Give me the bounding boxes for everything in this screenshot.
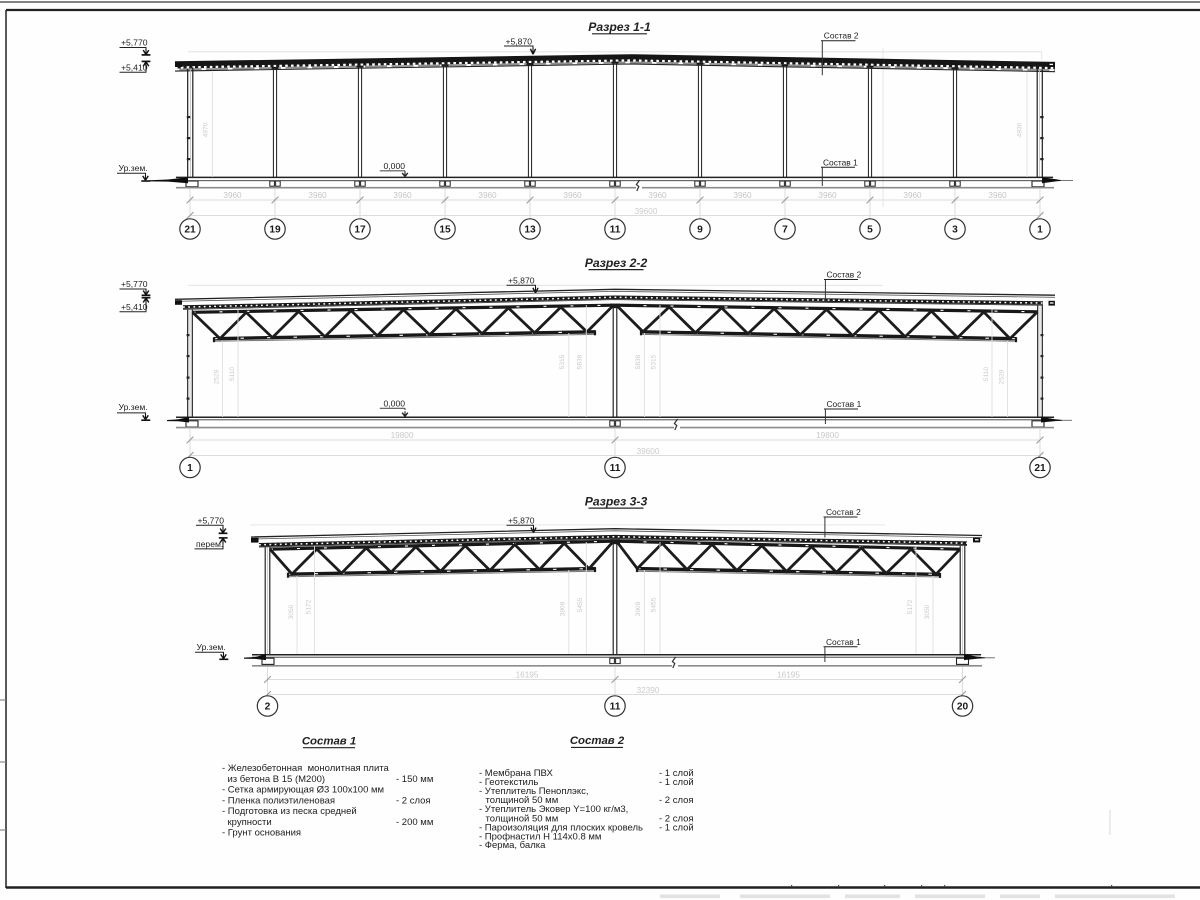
svg-text:- 2 слоя: - 2 слоя [659,795,694,806]
svg-text:3960: 3960 [648,191,667,200]
svg-text:1: 1 [187,463,193,474]
svg-text:+5,770: +5,770 [198,515,225,525]
svg-text:2: 2 [265,702,271,713]
svg-text:3960: 3960 [223,191,242,200]
svg-text:- Железобетонная монолитная п: - Железобетонная монолитная плита [222,763,389,774]
svg-text:+5,770: +5,770 [121,38,148,48]
svg-text:5110: 5110 [983,367,990,382]
svg-text:2529: 2529 [214,369,221,384]
svg-text:Разрез 1-1: Разрез 1-1 [588,20,651,34]
svg-text:5455: 5455 [651,597,658,612]
svg-text:3960: 3960 [988,191,1007,200]
svg-text:- Подготовка из песка средней: - Подготовка из песка средней [222,806,357,817]
svg-text:Разрез 2-2: Разрез 2-2 [585,256,648,270]
svg-text:Ур.зем.: Ур.зем. [119,163,148,173]
svg-text:- 150 мм: - 150 мм [396,774,433,785]
svg-text:5315: 5315 [650,354,657,369]
svg-text:Состав 2: Состав 2 [570,735,625,747]
svg-text:4930: 4930 [1017,122,1024,137]
svg-text:13: 13 [524,225,536,236]
svg-text:5838: 5838 [635,354,642,369]
svg-text:20: 20 [957,702,969,713]
svg-text:3960: 3960 [818,191,837,200]
svg-text:32390: 32390 [637,686,660,695]
svg-text:15: 15 [439,225,451,236]
svg-text:Разрез 3-3: Разрез 3-3 [585,494,648,508]
svg-text:Состав 2: Состав 2 [826,507,861,517]
svg-text:5172: 5172 [305,599,312,614]
svg-text:5110: 5110 [229,367,236,382]
svg-text:- 200 мм: - 200 мм [396,817,433,828]
svg-text:3909: 3909 [560,601,567,616]
svg-text:Состав 1: Состав 1 [302,736,356,748]
svg-text:- Грунт основания: - Грунт основания [222,827,301,838]
svg-text:+5,870: +5,870 [508,276,535,286]
svg-text:5455: 5455 [577,597,584,612]
svg-text:39600: 39600 [635,207,658,216]
svg-text:16195: 16195 [777,671,800,680]
svg-text:21: 21 [184,225,196,236]
svg-text:+5,770: +5,770 [121,279,148,289]
svg-text:17: 17 [354,225,366,236]
svg-text:19800: 19800 [816,431,839,440]
svg-text:3960: 3960 [308,191,327,200]
svg-text:- 1 слой: - 1 слой [659,777,694,788]
svg-text:5: 5 [867,225,873,236]
svg-text:5172: 5172 [907,599,914,614]
svg-text:из бетона В 15 (М200): из бетона В 15 (М200) [228,774,326,785]
svg-text:5838: 5838 [577,354,584,369]
svg-text:3960: 3960 [393,191,412,200]
svg-text:- Сетка армирующая Ø3 100х100: - Сетка армирующая Ø3 100х100 мм [222,785,384,796]
svg-text:2529: 2529 [998,369,1005,384]
svg-text:- Ферма, балка: - Ферма, балка [479,840,546,851]
svg-text:5315: 5315 [559,354,566,369]
svg-text:3960: 3960 [903,191,922,200]
svg-text:Состав 1: Состав 1 [823,158,858,168]
svg-text:Ур.зем.: Ур.зем. [197,642,226,652]
svg-text:крупности: крупности [228,817,272,828]
svg-text:3: 3 [952,225,958,236]
svg-text:+5,410: +5,410 [121,62,148,72]
svg-text:Состав 1: Состав 1 [827,399,862,409]
svg-text:перем.: перем. [196,539,223,549]
svg-text:39600: 39600 [637,447,660,456]
svg-text:Состав 2: Состав 2 [824,31,859,41]
svg-text:9: 9 [697,225,703,236]
svg-text:3960: 3960 [478,191,497,200]
svg-text:11: 11 [610,225,621,236]
svg-text:1: 1 [1037,225,1043,236]
svg-text:Состав 1: Состав 1 [826,637,861,647]
svg-text:3960: 3960 [563,191,582,200]
svg-text:3909: 3909 [635,601,642,616]
svg-text:Состав 2: Состав 2 [827,270,862,280]
svg-text:7: 7 [782,225,788,236]
svg-text:- 2 слоя: - 2 слоя [396,795,431,806]
svg-text:+5,870: +5,870 [508,516,535,526]
svg-text:19: 19 [269,225,281,236]
svg-text:19800: 19800 [391,431,414,440]
svg-text:0,000: 0,000 [384,161,406,171]
svg-text:3050: 3050 [924,604,931,619]
svg-text:0,000: 0,000 [384,399,406,409]
svg-text:Ур.зем.: Ур.зем. [119,402,148,412]
svg-text:3050: 3050 [288,604,295,619]
svg-text:16195: 16195 [516,671,539,680]
svg-text:11: 11 [610,463,621,474]
svg-text:- Пленка полиэтиленовая: - Пленка полиэтиленовая [222,795,335,806]
svg-text:21: 21 [1034,463,1046,474]
svg-text:3960: 3960 [733,191,752,200]
svg-text:+5,870: +5,870 [506,36,533,46]
svg-text:- 1 слой: - 1 слой [659,822,694,833]
svg-text:11: 11 [610,702,621,713]
svg-text:4970: 4970 [203,122,210,137]
svg-text:+5,410: +5,410 [121,302,148,312]
